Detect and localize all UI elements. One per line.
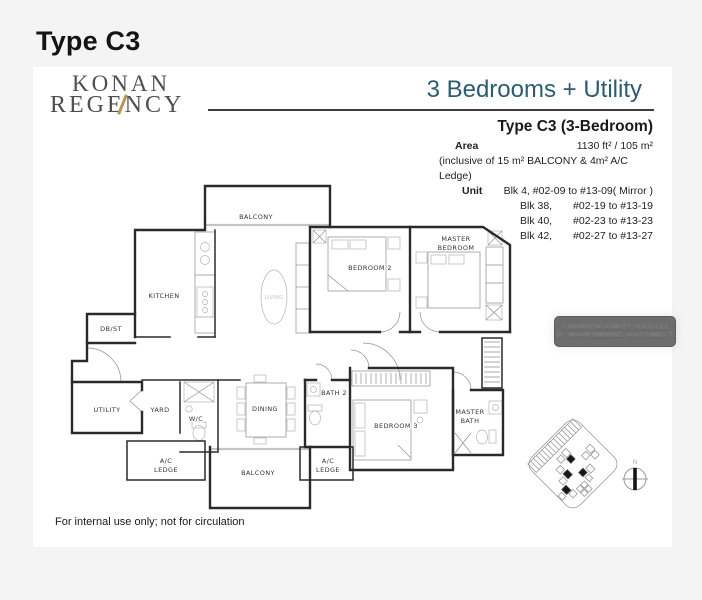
riser-hatch — [484, 342, 500, 382]
blk-range: #02-23 to #13-23 — [573, 214, 653, 229]
room-label-kitchen: KITCHEN — [149, 292, 180, 300]
header-divider — [208, 109, 654, 111]
north-compass-icon: N — [622, 458, 648, 490]
bath2-fixtures-icon — [307, 383, 322, 425]
area-label: Area — [437, 139, 478, 154]
bedroom2-bed-icon — [313, 230, 400, 291]
page-title: Type C3 — [36, 26, 140, 57]
room-label-bath2: BATH 2 — [321, 389, 347, 397]
north-label: N — [633, 458, 638, 466]
footer-note: For internal use only; not for circulati… — [55, 516, 245, 528]
room-label-utility: UTILITY — [94, 406, 121, 414]
bedroom3-bed-icon — [352, 371, 430, 460]
watermark-text-line2: B - MAAM NMNBNG IAAO NMBO T — [557, 332, 672, 340]
room-label-dining: DINING — [252, 405, 278, 413]
room-label-master-bath-line2: BATH — [461, 417, 480, 425]
room-labels: BALCONY KITCHEN DB/ST LIVING BEDROOM 2 M… — [94, 213, 485, 477]
plan-type-title: Type C3 (3-Bedroom) — [420, 118, 653, 136]
room-label-bedroom3: BEDROOM 3 — [374, 422, 418, 430]
room-label-dbst: DB/ST — [100, 325, 122, 333]
bedrooms-subtitle: 3 Bedrooms + Utility — [360, 76, 642, 104]
room-label-balcony-top: BALCONY — [239, 213, 273, 221]
wc-fixtures-icon — [184, 382, 214, 441]
room-label-living: LIVING — [265, 295, 283, 301]
room-label-ac-ledge-mid-line2: LEDGE — [316, 466, 340, 474]
watermark-badge: S MAMNTNGA-MATS SOO1 CL1 B - MAAM NMNBNG… — [554, 316, 676, 347]
blk-range: #02-19 to #13-19 — [573, 199, 653, 214]
tv-console-icon — [296, 243, 309, 333]
room-label-yard: YARD — [149, 406, 169, 414]
site-hatched-strip — [528, 419, 582, 473]
room-label-balcony-bottom: BALCONY — [241, 469, 275, 477]
floorplan-drawing: BALCONY KITCHEN DB/ST LIVING BEDROOM 2 M… — [58, 175, 523, 515]
site-building-cluster — [538, 434, 613, 509]
room-label-master-bath-line1: MASTER — [455, 408, 484, 416]
area-row: Area 1130 ft² / 105 m² — [437, 139, 653, 154]
area-value: 1130 ft² / 105 m² — [577, 139, 653, 154]
room-label-master-line2: BEDROOM — [438, 244, 475, 252]
room-label-ac-ledge-left-line1: A/C — [160, 457, 172, 465]
unit-first-value: Blk 4, #02-09 to #13-09( Mirror ) — [504, 184, 653, 199]
room-label-bedroom2: BEDROOM 2 — [348, 264, 392, 272]
watermark-text-line1: S MAMNTNGA-MATS SOO1 CL1 — [562, 324, 669, 332]
logo-regency: REGENCY — [50, 92, 184, 119]
site-plan-map: N — [525, 412, 675, 522]
room-label-wc: W/C — [189, 415, 203, 423]
brochure-page: Type C3 KONAN REGENCY 3 Bedrooms + Utili… — [0, 0, 702, 600]
kitchen-counter-icon — [195, 232, 215, 333]
blk-range: #02-27 to #13-27 — [573, 229, 653, 244]
room-label-master-line1: MASTER — [441, 235, 470, 243]
room-label-ac-ledge-mid-line1: A/C — [322, 457, 334, 465]
room-label-ac-ledge-left-line2: LEDGE — [154, 466, 178, 474]
